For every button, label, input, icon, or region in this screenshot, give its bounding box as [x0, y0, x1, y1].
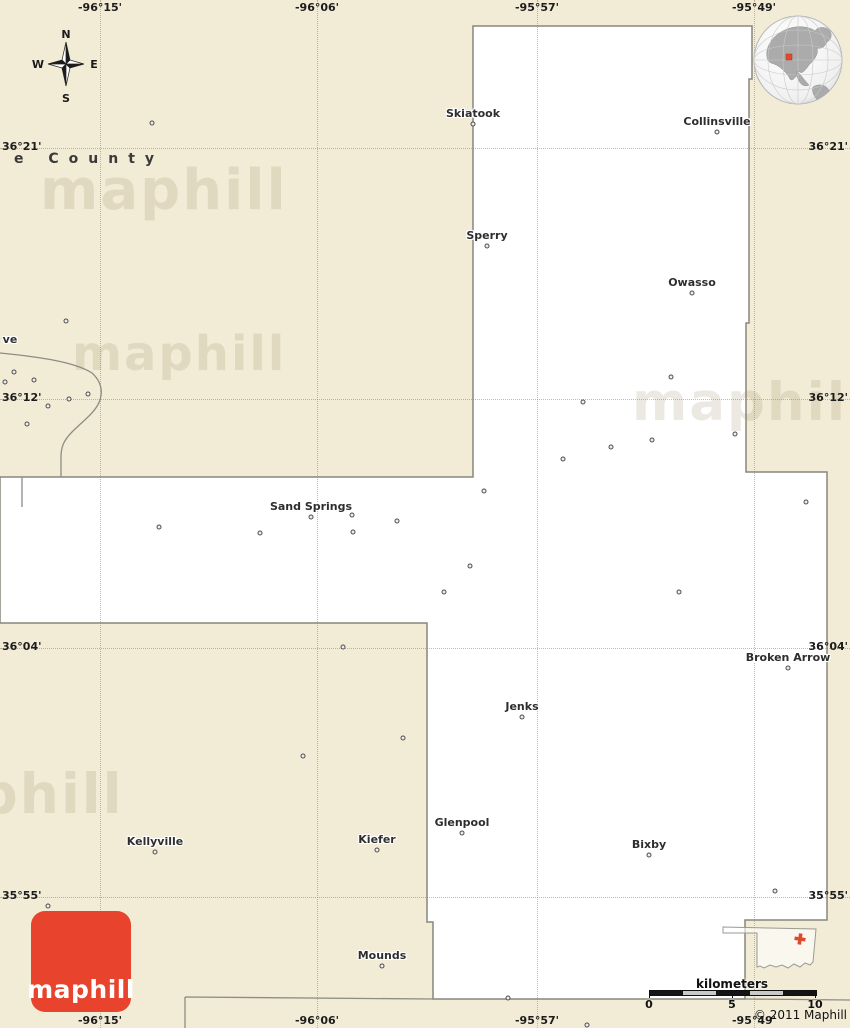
poi-dot: [3, 380, 8, 385]
city-dot: [786, 666, 791, 671]
scalebar-tick: [649, 990, 650, 998]
city-dot: [460, 831, 465, 836]
poi-dot: [351, 530, 356, 535]
poi-dot: [468, 564, 473, 569]
compass-w-label: W: [32, 58, 44, 71]
scalebar-tick: [815, 990, 816, 998]
scalebar: [649, 990, 817, 996]
poi-dot: [650, 438, 655, 443]
poi-dot: [401, 736, 406, 741]
poi-dot: [64, 319, 69, 324]
poi-dot: [669, 375, 674, 380]
poi-dot: [32, 378, 37, 383]
poi-dot: [581, 400, 586, 405]
city-dot: [485, 244, 490, 249]
city-dot: [309, 515, 314, 520]
globe-location-marker: [786, 54, 792, 60]
globe-locator-icon: [751, 13, 845, 107]
poi-dot: [350, 513, 355, 518]
city-dot: [690, 291, 695, 296]
neighbor-county-label: e County: [14, 151, 164, 167]
poi-dot: [733, 432, 738, 437]
city-label: Jenks: [505, 700, 538, 713]
poi-dot: [12, 370, 17, 375]
compass-s-label: S: [62, 92, 70, 105]
scalebar-title: kilometers: [632, 977, 832, 991]
poi-dot: [585, 1023, 590, 1028]
city-dot: [471, 122, 476, 127]
poi-dot: [677, 590, 682, 595]
state-inset-map: [720, 922, 820, 972]
poi-dot: [86, 392, 91, 397]
poi-dot: [482, 489, 487, 494]
city-label: Skiatook: [446, 107, 500, 120]
poi-dot: [442, 590, 447, 595]
city-dot: [153, 850, 158, 855]
poi-dot: [46, 904, 51, 909]
city-label: Collinsville: [683, 115, 750, 128]
poi-dot: [561, 457, 566, 462]
maphill-logo-text: maphill: [27, 975, 135, 1012]
city-label: Kellyville: [127, 835, 183, 848]
city-dot: [715, 130, 720, 135]
maphill-logo[interactable]: maphill: [31, 911, 131, 1012]
scalebar-tick: [732, 990, 733, 998]
compass-n-label: N: [61, 28, 70, 41]
poi-dot: [67, 397, 72, 402]
poi-dot: [609, 445, 614, 450]
city-label: Bixby: [632, 838, 666, 851]
poi-dot: [395, 519, 400, 524]
city-dot: [380, 964, 385, 969]
city-label: Kiefer: [358, 833, 395, 846]
clipped-city-label: ve: [3, 333, 18, 346]
city-label: Glenpool: [435, 816, 490, 829]
city-label: Broken Arrow: [746, 651, 831, 664]
city-label: Sand Springs: [270, 500, 352, 513]
poi-dot: [301, 754, 306, 759]
copyright-notice: © 2011 Maphill: [754, 1008, 847, 1022]
compass-e-label: E: [90, 58, 98, 71]
map-canvas: maphill maphill maphill maphill -96°15'-…: [0, 0, 850, 1028]
scalebar-number: 5: [728, 998, 736, 1011]
poi-dot: [25, 422, 30, 427]
poi-dot: [46, 404, 51, 409]
city-dot: [375, 848, 380, 853]
poi-dot: [157, 525, 162, 530]
poi-dot: [773, 889, 778, 894]
scalebar-number: 0: [645, 998, 653, 1011]
city-dot: [520, 715, 525, 720]
poi-dot: [506, 996, 511, 1001]
city-dot: [647, 853, 652, 858]
poi-dot: [804, 500, 809, 505]
poi-dot: [258, 531, 263, 536]
city-label: Sperry: [466, 229, 507, 242]
poi-dot: [341, 645, 346, 650]
state-outline: [723, 927, 816, 968]
compass-rose-icon: N S W E: [28, 24, 108, 108]
poi-dot: [150, 121, 155, 126]
city-label: Mounds: [358, 949, 407, 962]
city-label: Owasso: [668, 276, 716, 289]
